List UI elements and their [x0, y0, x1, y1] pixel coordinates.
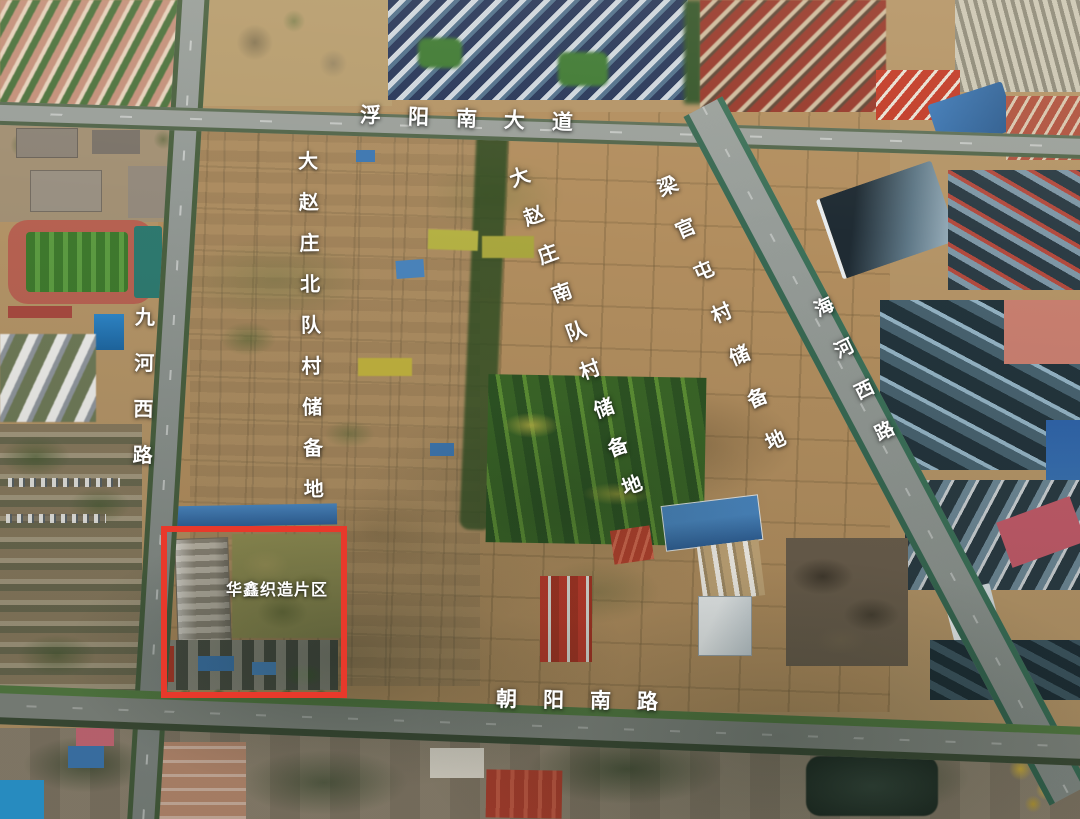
label-char: 南: [456, 108, 478, 130]
label-char: 九: [135, 308, 155, 328]
white-apartment-towers: [0, 334, 96, 422]
label-char: 大: [298, 152, 318, 172]
residential-west: [0, 424, 142, 696]
parking-row: [8, 478, 120, 487]
blue-roof-shed: [356, 150, 375, 162]
jiuhe-west-road-label: 九 河 西 路: [132, 308, 155, 466]
blue-roof-shed: [395, 259, 424, 279]
white-building: [430, 748, 484, 778]
yellow-crop-strip: [428, 229, 479, 251]
blue-long-warehouse: [155, 503, 337, 527]
blue-roof-shed: [430, 443, 454, 456]
label-char: 西: [133, 400, 153, 420]
yellow-crop-strip: [358, 358, 412, 376]
label-char: 阳: [408, 107, 430, 129]
aerial-photo: 浮 阳 南 大 道 九 河 西 路 大 赵 庄 北 队 村 储 备 地 大 赵 …: [0, 0, 1080, 819]
huaxin-weaving-district-highlight-box: [161, 526, 347, 698]
huaxin-weaving-district-label: 华鑫织造片区: [226, 583, 328, 599]
pink-roof-building: [76, 728, 114, 746]
school-building: [16, 128, 78, 158]
label-char: 南: [590, 691, 611, 712]
red-roof-building: [486, 769, 563, 818]
blue-roof-building: [0, 780, 44, 819]
basketball-courts: [134, 226, 162, 298]
courtyard-green: [558, 52, 608, 86]
label-char: 地: [304, 480, 324, 500]
greenhouse-rows: [955, 0, 1080, 92]
parking-row: [6, 514, 106, 523]
industrial-sheds-east: [948, 170, 1080, 290]
label-char: 赵: [299, 193, 319, 213]
blue-roof-building: [68, 746, 104, 768]
residential-blocks-top-left: [0, 0, 182, 108]
label-char: 浮: [360, 105, 382, 127]
blue-roof-building: [94, 314, 124, 350]
label-char: 队: [301, 316, 321, 336]
vacant-land-top: [196, 0, 392, 106]
courtyard-green: [418, 38, 462, 68]
label-char: 朝: [496, 689, 517, 710]
stadium-stands: [8, 306, 72, 318]
label-char: 道: [552, 112, 574, 134]
label-char: 储: [302, 398, 322, 418]
label-char: 阳: [543, 690, 564, 711]
label-char: 庄: [299, 234, 319, 254]
truck-parking-lot: [697, 539, 765, 602]
highrise-towers-top: [388, 0, 688, 100]
pond: [806, 756, 938, 816]
pink-roof-building: [1004, 300, 1080, 364]
label-char: 大: [504, 110, 526, 132]
chaoyang-south-road-label: 朝 阳 南 路: [496, 689, 658, 713]
label-char: 村: [301, 357, 321, 377]
label-char: 路: [132, 446, 152, 466]
yellow-crop-strip: [482, 236, 534, 258]
demolition-rubble-field: [786, 538, 908, 666]
label-char: 北: [300, 275, 320, 295]
red-roof-shed: [610, 525, 654, 564]
red-roof-complex: [540, 576, 592, 662]
label-char: 路: [637, 691, 658, 712]
school-building: [30, 170, 102, 212]
sports-field: [26, 232, 128, 292]
label-char: 河: [134, 354, 154, 374]
white-warehouses: [698, 596, 752, 656]
label-char: 备: [303, 439, 323, 459]
school-building: [92, 130, 140, 154]
